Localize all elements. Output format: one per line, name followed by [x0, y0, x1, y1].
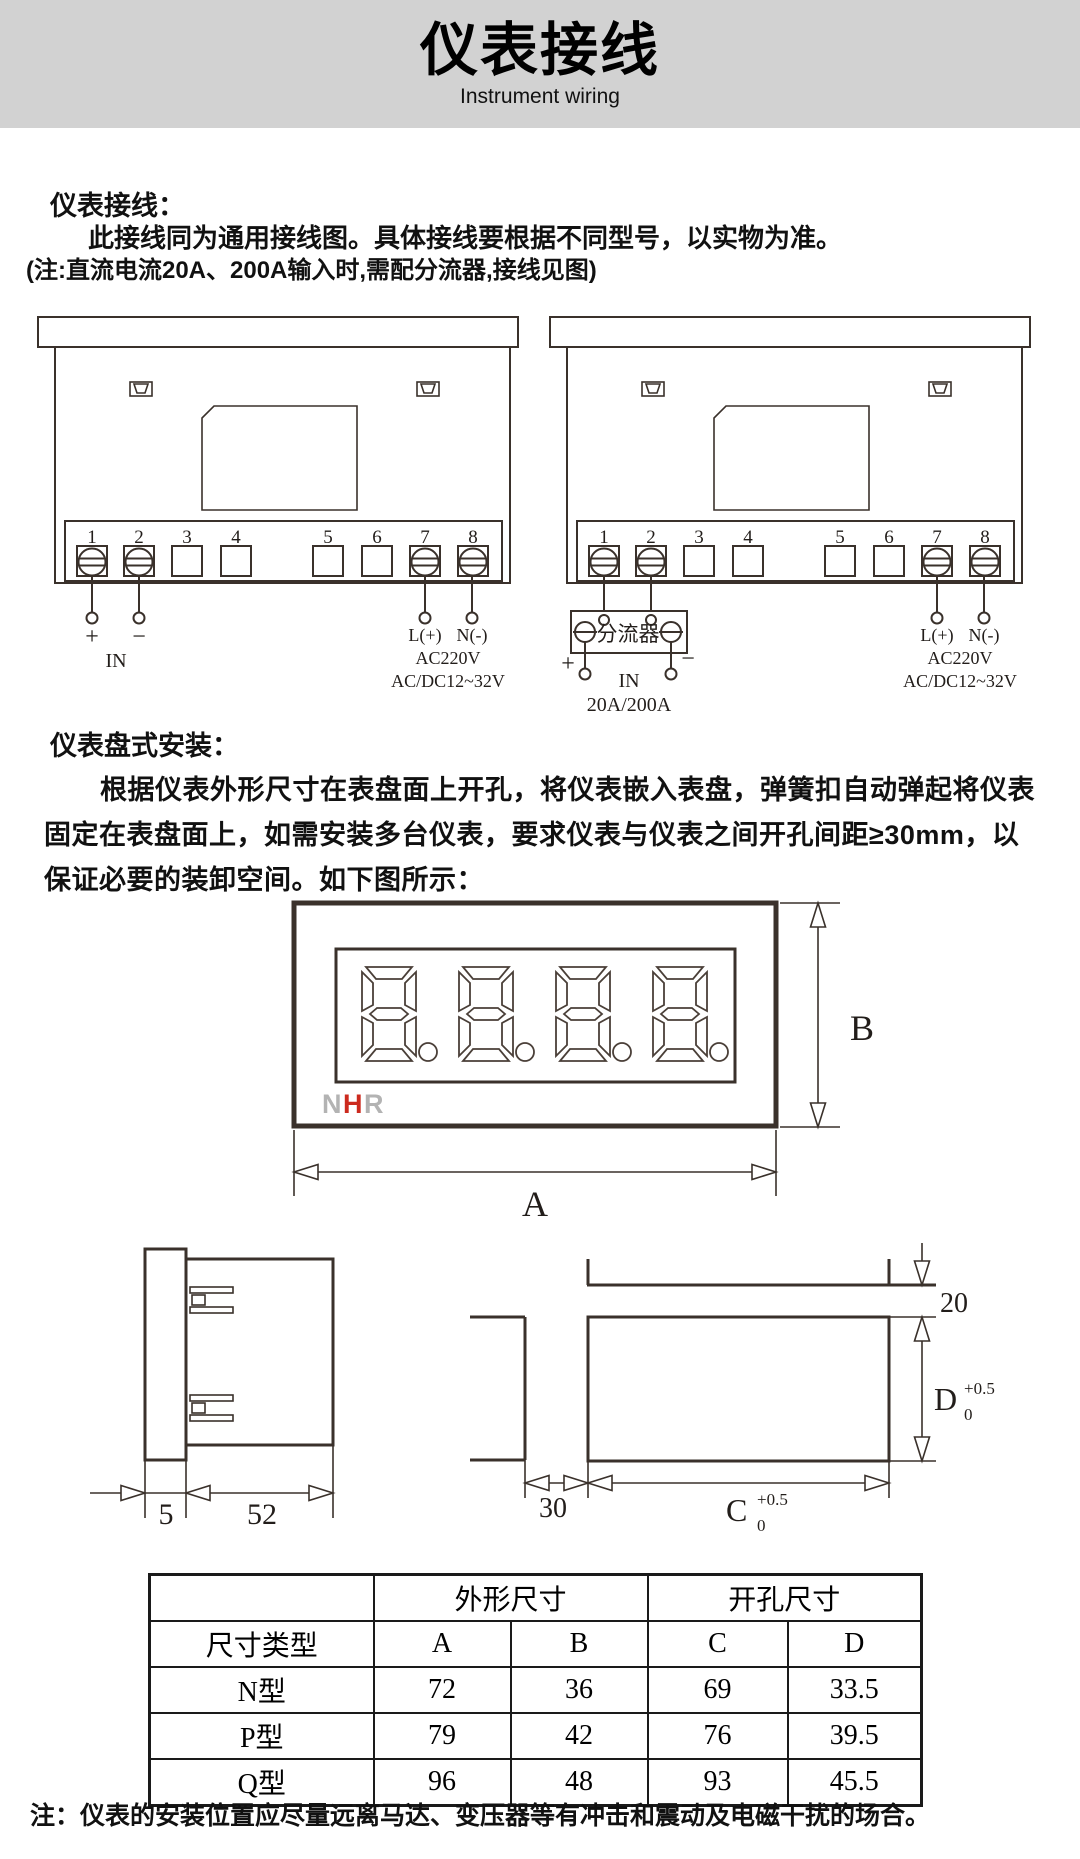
left-input-plus-label: + — [85, 624, 99, 650]
cell-b: 42 — [511, 1713, 648, 1759]
table-row: P型 79 42 76 39.5 — [150, 1713, 922, 1759]
cell-b: 36 — [511, 1667, 648, 1713]
cell-d: 39.5 — [788, 1713, 922, 1759]
row-type: P型 — [150, 1713, 374, 1759]
side-view-figure: 5 52 — [90, 1249, 333, 1531]
dim-d-sub: 0 — [964, 1405, 973, 1424]
left-power-n-label: N(-) — [457, 625, 488, 646]
meter-front-figure: N H R A B — [294, 903, 874, 1224]
cutout-figure: 20 D +0.5 0 30 C +0.5 0 — [470, 1243, 995, 1535]
table-cutout-header: 开孔尺寸 — [648, 1575, 922, 1622]
left-power-l-label: L(+) — [408, 625, 441, 646]
row-type: N型 — [150, 1667, 374, 1713]
dim-c-label: C — [726, 1492, 747, 1528]
right-power-v2-label: AC/DC12~32V — [903, 671, 1017, 691]
manual-page: 仪表接线 Instrument wiring 仪表接线： 此接线同为通用接线图。… — [0, 0, 1080, 1859]
dim-b-label: B — [850, 1008, 874, 1048]
table-col-d: D — [788, 1621, 922, 1667]
dim-d-sup: +0.5 — [964, 1379, 995, 1398]
table-column-header-row: 尺寸类型 A B C D — [150, 1621, 922, 1667]
bottom-note: 注：仪表的安装位置应尽量远离马达、变压器等有冲击和震动及电磁干扰的场合。 — [30, 1796, 930, 1832]
dim-c-sub: 0 — [757, 1516, 766, 1535]
right-power-n-label: N(-) — [969, 625, 1000, 646]
table-outline-header: 外形尺寸 — [374, 1575, 648, 1622]
right-power-v1-label: AC220V — [927, 648, 992, 668]
cell-d: 33.5 — [788, 1667, 922, 1713]
shunt-label: 分流器 — [597, 622, 660, 646]
wiring-diagram-left: + − IN L(+) N(-) AC220V AC/DC12~32V — [38, 317, 518, 691]
shunt-range-label: 20A/200A — [587, 694, 672, 716]
table-empty-cell — [150, 1575, 374, 1622]
table-col-a: A — [374, 1621, 511, 1667]
table-col-c: C — [648, 1621, 788, 1667]
dim-a-label: A — [522, 1184, 548, 1224]
cell-a: 72 — [374, 1667, 511, 1713]
shunt-box: 分流器 + − IN 20A/200A — [561, 576, 695, 716]
cell-a: 79 — [374, 1713, 511, 1759]
shunt-plus-label: + — [561, 651, 575, 677]
size-table: 外形尺寸 开孔尺寸 尺寸类型 A B C D N型 72 36 69 33.5 — [148, 1573, 923, 1807]
logo-letter-n: N — [322, 1089, 340, 1119]
shunt-in-label: IN — [618, 670, 639, 692]
left-input-minus-label: − — [132, 624, 146, 650]
cell-c: 76 — [648, 1713, 788, 1759]
cell-c: 69 — [648, 1667, 788, 1713]
spring-clip-top — [190, 1287, 233, 1313]
table-type-header: 尺寸类型 — [150, 1621, 374, 1667]
table-group-header-row: 外形尺寸 开孔尺寸 — [150, 1575, 922, 1622]
display-digits — [362, 967, 728, 1061]
logo-letter-r: R — [364, 1089, 383, 1119]
table-col-b: B — [511, 1621, 648, 1667]
dim-hgap-label: 30 — [539, 1493, 567, 1524]
table-row: N型 72 36 69 33.5 — [150, 1667, 922, 1713]
wiring-diagram-right: L(+) N(-) AC220V AC/DC12~32V 分流器 + − IN — [550, 317, 1030, 716]
nhr-logo: N H R — [322, 1089, 383, 1119]
dim-c-sup: +0.5 — [757, 1490, 788, 1509]
dim-bezel-label: 5 — [159, 1498, 174, 1531]
logo-letter-h: H — [343, 1089, 361, 1119]
dim-depth-label: 52 — [247, 1498, 277, 1531]
left-power-v2-label: AC/DC12~32V — [391, 671, 505, 691]
shunt-minus-label: − — [681, 646, 695, 672]
spring-clip-bottom — [190, 1395, 233, 1421]
left-input-in-label: IN — [105, 650, 126, 672]
left-power-v1-label: AC220V — [415, 648, 480, 668]
right-power-l-label: L(+) — [920, 625, 953, 646]
dim-d-label: D — [934, 1381, 957, 1417]
dim-vgap-label: 20 — [940, 1288, 968, 1319]
